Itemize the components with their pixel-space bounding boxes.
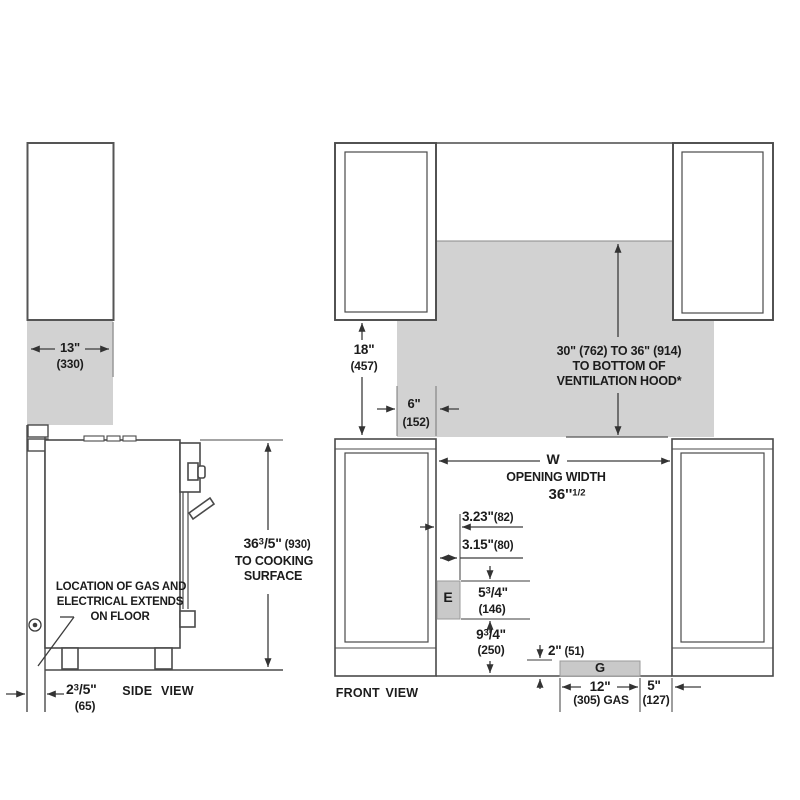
- control-knob-base: [188, 463, 198, 480]
- installation-diagram: 13" (330) 363/5"(930) TO COOKING SURFACE…: [0, 0, 800, 800]
- dim-12-mm: (305) GAS: [573, 694, 629, 707]
- dim-18-mm: (457): [350, 360, 377, 373]
- dim-5-mm: (127): [642, 694, 669, 707]
- upper-cabinet-right: [673, 143, 773, 320]
- dim-5-label: 5": [647, 678, 661, 693]
- dim-13-label: 13": [60, 341, 80, 356]
- dim-6-mm: (152): [402, 416, 429, 429]
- dim-12-label: 12": [590, 679, 611, 694]
- opening-width-value: 36''1/2: [548, 487, 585, 504]
- hood-clearance-line3: VENTILATION HOOD*: [557, 374, 682, 388]
- dim-934-label: 93/4": [476, 627, 506, 642]
- dim-534-label: 53/4": [478, 585, 508, 600]
- control-knob: [198, 466, 205, 478]
- dim-534-mm: (146): [478, 603, 505, 616]
- range-leg: [62, 648, 78, 669]
- dim-315-label: 3.15"(80): [462, 537, 513, 553]
- opening-width-symbol: W: [546, 452, 559, 468]
- cooking-height-note-2: SURFACE: [244, 569, 302, 583]
- base-cabinet-right: [672, 439, 773, 676]
- opening-width-label: OPENING WIDTH: [506, 470, 605, 484]
- dim-wall-gap-label: 23/5": [66, 682, 97, 698]
- upper-cabinet-left: [335, 143, 436, 320]
- side-tall-cabinet: [28, 143, 114, 320]
- front-clearance-shade: [397, 241, 714, 437]
- hood-clearance-line1: 30" (762) TO 36" (914): [557, 344, 682, 358]
- diagram-linework: [0, 0, 800, 800]
- side-range: [45, 436, 214, 669]
- dim-934-mm: (250): [477, 644, 504, 657]
- hood-clearance-line2: TO BOTTOM OF: [573, 359, 666, 373]
- base-cabinet-left: [335, 439, 436, 676]
- cooking-height-note-1: TO COOKING: [235, 554, 313, 568]
- gas-note-line1: LOCATION OF GAS AND: [56, 581, 186, 594]
- dim-323-label: 3.23"(82): [462, 509, 513, 525]
- dim-18-label: 18": [354, 342, 375, 357]
- gas-note-line2: ELECTRICAL EXTENDS: [57, 596, 184, 609]
- dim-cooking-height-label: 363/5"(930): [243, 536, 310, 552]
- dim-13-mm: (330): [56, 358, 83, 371]
- side-bottom-step: [180, 611, 195, 627]
- gas-note-line3: ON FLOOR: [90, 611, 149, 624]
- door-handle: [189, 498, 214, 519]
- gas-outlet-symbol: [29, 619, 41, 631]
- front-view-title: FRONT VIEW: [336, 686, 418, 700]
- electrical-symbol: E: [443, 590, 452, 606]
- gas-symbol: G: [595, 661, 605, 675]
- dim-2-label: 2"(51): [548, 643, 584, 659]
- side-view-shade-region: [27, 320, 113, 425]
- dim-wall-gap-mm: (65): [75, 700, 96, 713]
- dim-6-label: 6": [408, 397, 421, 412]
- burner-grate-profile: [84, 436, 136, 441]
- side-view-title: SIDE VIEW: [122, 684, 193, 698]
- range-leg: [155, 648, 172, 669]
